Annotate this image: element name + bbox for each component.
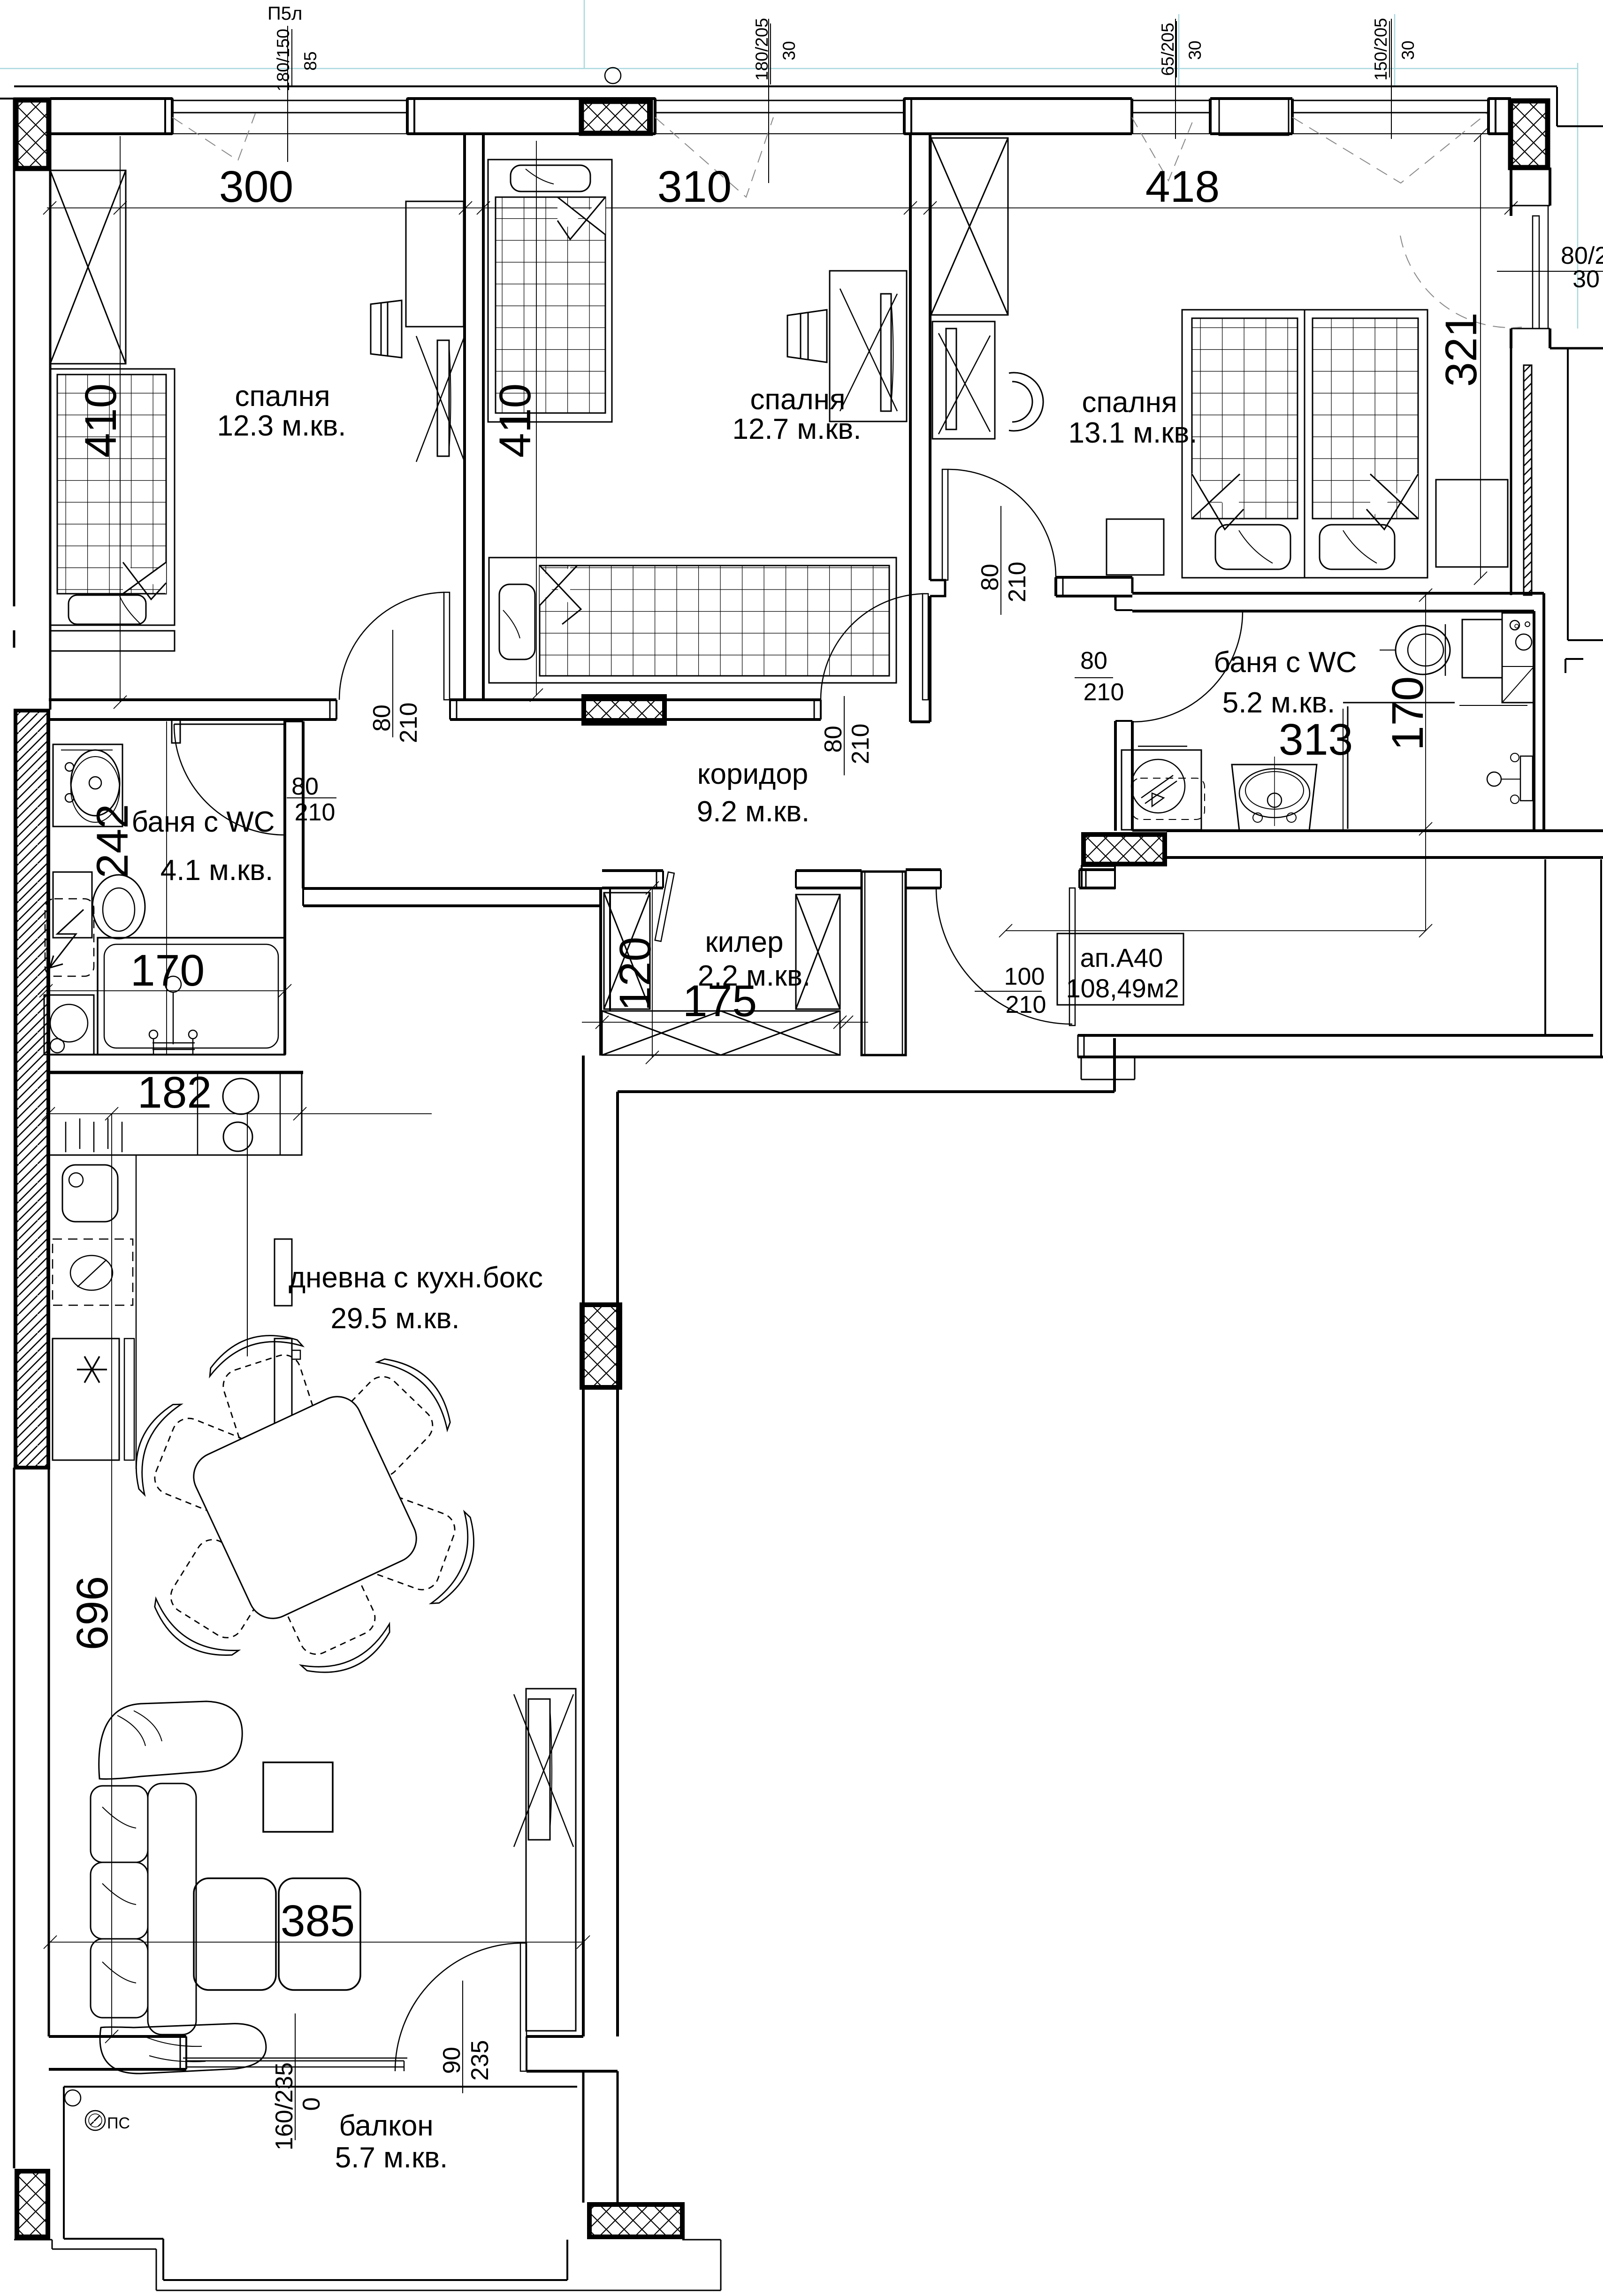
svg-text:80: 80 [820,726,847,753]
svg-text:баня с WC: баня с WC [1214,646,1357,679]
svg-text:235: 235 [466,2040,494,2081]
svg-text:спалня: спалня [750,383,845,416]
svg-text:4.1 м.кв.: 4.1 м.кв. [160,854,274,887]
svg-text:12.7 м.кв.: 12.7 м.кв. [732,413,861,445]
svg-text:80: 80 [1080,647,1107,674]
svg-text:85: 85 [301,51,320,70]
svg-text:13.1 м.кв.: 13.1 м.кв. [1068,417,1197,449]
svg-text:30: 30 [1185,40,1205,60]
svg-text:дневна с кухн.бокс: дневна с кухн.бокс [289,1262,543,1294]
svg-text:418: 418 [1145,162,1220,212]
svg-text:80: 80 [368,704,396,732]
svg-text:385: 385 [281,1896,355,1946]
svg-text:65/205: 65/205 [1158,23,1177,76]
svg-text:9.2 м.кв.: 9.2 м.кв. [697,796,810,828]
svg-text:килер: килер [705,926,784,958]
svg-text:90: 90 [438,2047,466,2074]
svg-text:баня с WC: баня с WC [131,806,275,838]
svg-text:П5л: П5л [267,3,302,24]
svg-text:210: 210 [395,703,422,743]
svg-text:балкон: балкон [339,2110,433,2142]
svg-text:80: 80 [977,564,1004,591]
svg-text:210: 210 [295,799,336,826]
svg-text:182: 182 [137,1068,212,1117]
svg-text:170: 170 [1383,676,1433,751]
svg-text:29.5 м.кв.: 29.5 м.кв. [330,1302,459,1335]
svg-text:100: 100 [1004,963,1045,990]
svg-text:210: 210 [1006,991,1046,1018]
svg-text:210: 210 [1084,679,1124,706]
svg-text:спалня: спалня [1082,386,1177,419]
svg-text:30: 30 [779,41,799,60]
svg-text:310: 310 [657,162,732,212]
svg-text:108,49м2: 108,49м2 [1066,973,1179,1003]
svg-text:ПС: ПС [107,2114,130,2132]
svg-text:150/205: 150/205 [1371,18,1390,81]
svg-text:300: 300 [219,162,294,212]
svg-text:696: 696 [68,1576,117,1651]
svg-text:170: 170 [130,946,205,995]
svg-text:5.7 м.кв.: 5.7 м.кв. [335,2142,448,2174]
svg-text:210: 210 [847,724,874,765]
svg-text:210: 210 [1004,562,1031,603]
svg-text:30: 30 [1398,40,1418,60]
svg-text:ап.А40: ап.А40 [1080,943,1163,972]
svg-text:спалня: спалня [235,380,330,413]
svg-text:5.2 м.кв.: 5.2 м.кв. [1222,687,1336,719]
svg-text:321: 321 [1436,313,1486,387]
svg-text:0: 0 [298,2097,325,2111]
svg-text:коридор: коридор [697,758,809,790]
svg-text:2.2 м.кв.: 2.2 м.кв. [698,960,811,992]
svg-text:180/150: 180/150 [274,29,293,92]
svg-text:30: 30 [1572,266,1600,293]
svg-text:313: 313 [1279,715,1353,765]
svg-text:12.3 м.кв.: 12.3 м.кв. [217,410,346,442]
svg-text:160/235: 160/235 [271,2062,298,2151]
svg-text:80: 80 [291,773,319,800]
